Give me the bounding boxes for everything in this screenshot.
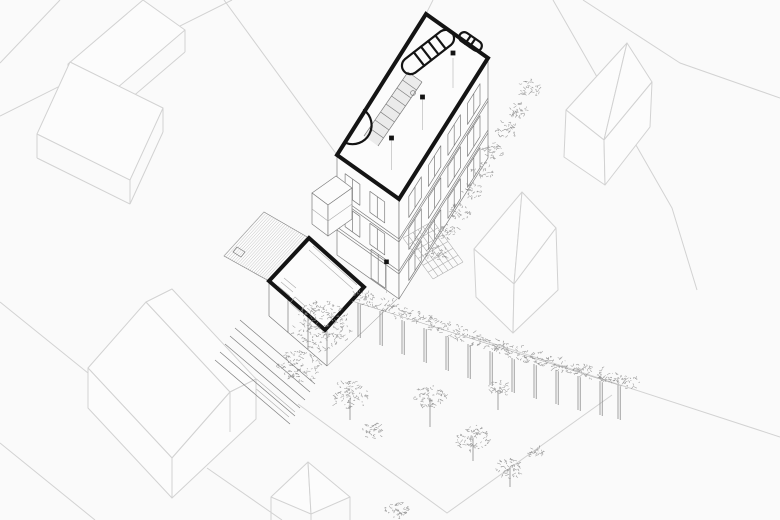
axonometric-site-drawing — [0, 0, 780, 520]
column-marker — [384, 260, 389, 265]
column-marker — [451, 51, 456, 56]
column-marker — [420, 95, 425, 100]
column-marker — [389, 136, 394, 141]
